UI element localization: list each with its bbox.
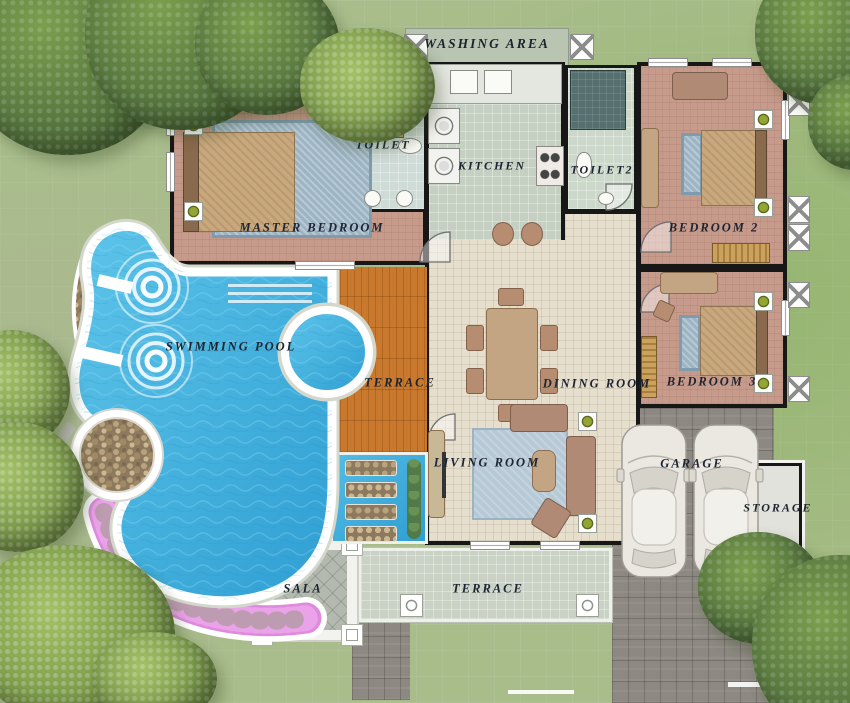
dining-chair xyxy=(466,368,484,394)
living-sofa-main xyxy=(566,436,596,516)
bar-stool xyxy=(521,222,543,246)
label-swimming-pool: SWIMMING POOL xyxy=(166,340,297,355)
stove xyxy=(536,146,564,186)
toilet2-sink xyxy=(598,192,614,205)
bar-stool xyxy=(492,222,514,246)
kitchen-sink xyxy=(484,70,512,94)
label-toilet2: TOILET2 xyxy=(570,163,633,178)
label-washing-area: WASHING AREA xyxy=(424,36,550,52)
label-master-bedroom: MASTER BEDROOM xyxy=(239,221,384,236)
label-kitchen: KITCHEN xyxy=(458,159,526,174)
label-bedroom3: BEDROOM 3 xyxy=(667,375,758,390)
floor-plan-canvas: WASHING AREA TOILET KITCHEN TOILET2 MAST… xyxy=(0,0,850,703)
bedroom2-desk xyxy=(641,128,659,208)
shower2 xyxy=(570,70,626,130)
bedroom3-desk xyxy=(660,272,718,294)
bedroom2-sofa xyxy=(672,72,728,100)
bedroom2-rug xyxy=(681,133,703,195)
dining-chair xyxy=(498,288,524,306)
living-sofa-top xyxy=(510,404,568,432)
label-living-room: LIVING ROOM xyxy=(434,456,540,471)
dining-chair xyxy=(466,325,484,351)
bathroom-sink xyxy=(364,190,381,207)
label-dining-room: DINING ROOM xyxy=(543,377,651,392)
terrace-wood-deck xyxy=(327,267,427,452)
bedroom3-headboard xyxy=(756,306,768,376)
label-garage: GARAGE xyxy=(660,457,723,472)
bedroom3-rug xyxy=(679,315,701,371)
label-terrace-bottom: TERRACE xyxy=(452,582,524,597)
label-terrace-deck: TERRACE xyxy=(364,376,436,391)
bathroom-sink xyxy=(396,190,413,207)
label-bedroom2: BEDROOM 2 xyxy=(669,221,760,236)
label-storage: STORAGE xyxy=(743,501,812,516)
kitchen-sink xyxy=(450,70,478,94)
stepping-stone-pond xyxy=(330,452,428,544)
dining-chair xyxy=(540,325,558,351)
palm-tree xyxy=(300,28,435,143)
label-sala: SALA xyxy=(283,582,322,597)
bedroom2-wardrobe xyxy=(712,243,770,263)
washing-machine xyxy=(428,108,460,144)
washing-machine xyxy=(428,148,460,184)
dining-table xyxy=(486,308,538,400)
bedroom2-headboard xyxy=(755,130,767,206)
